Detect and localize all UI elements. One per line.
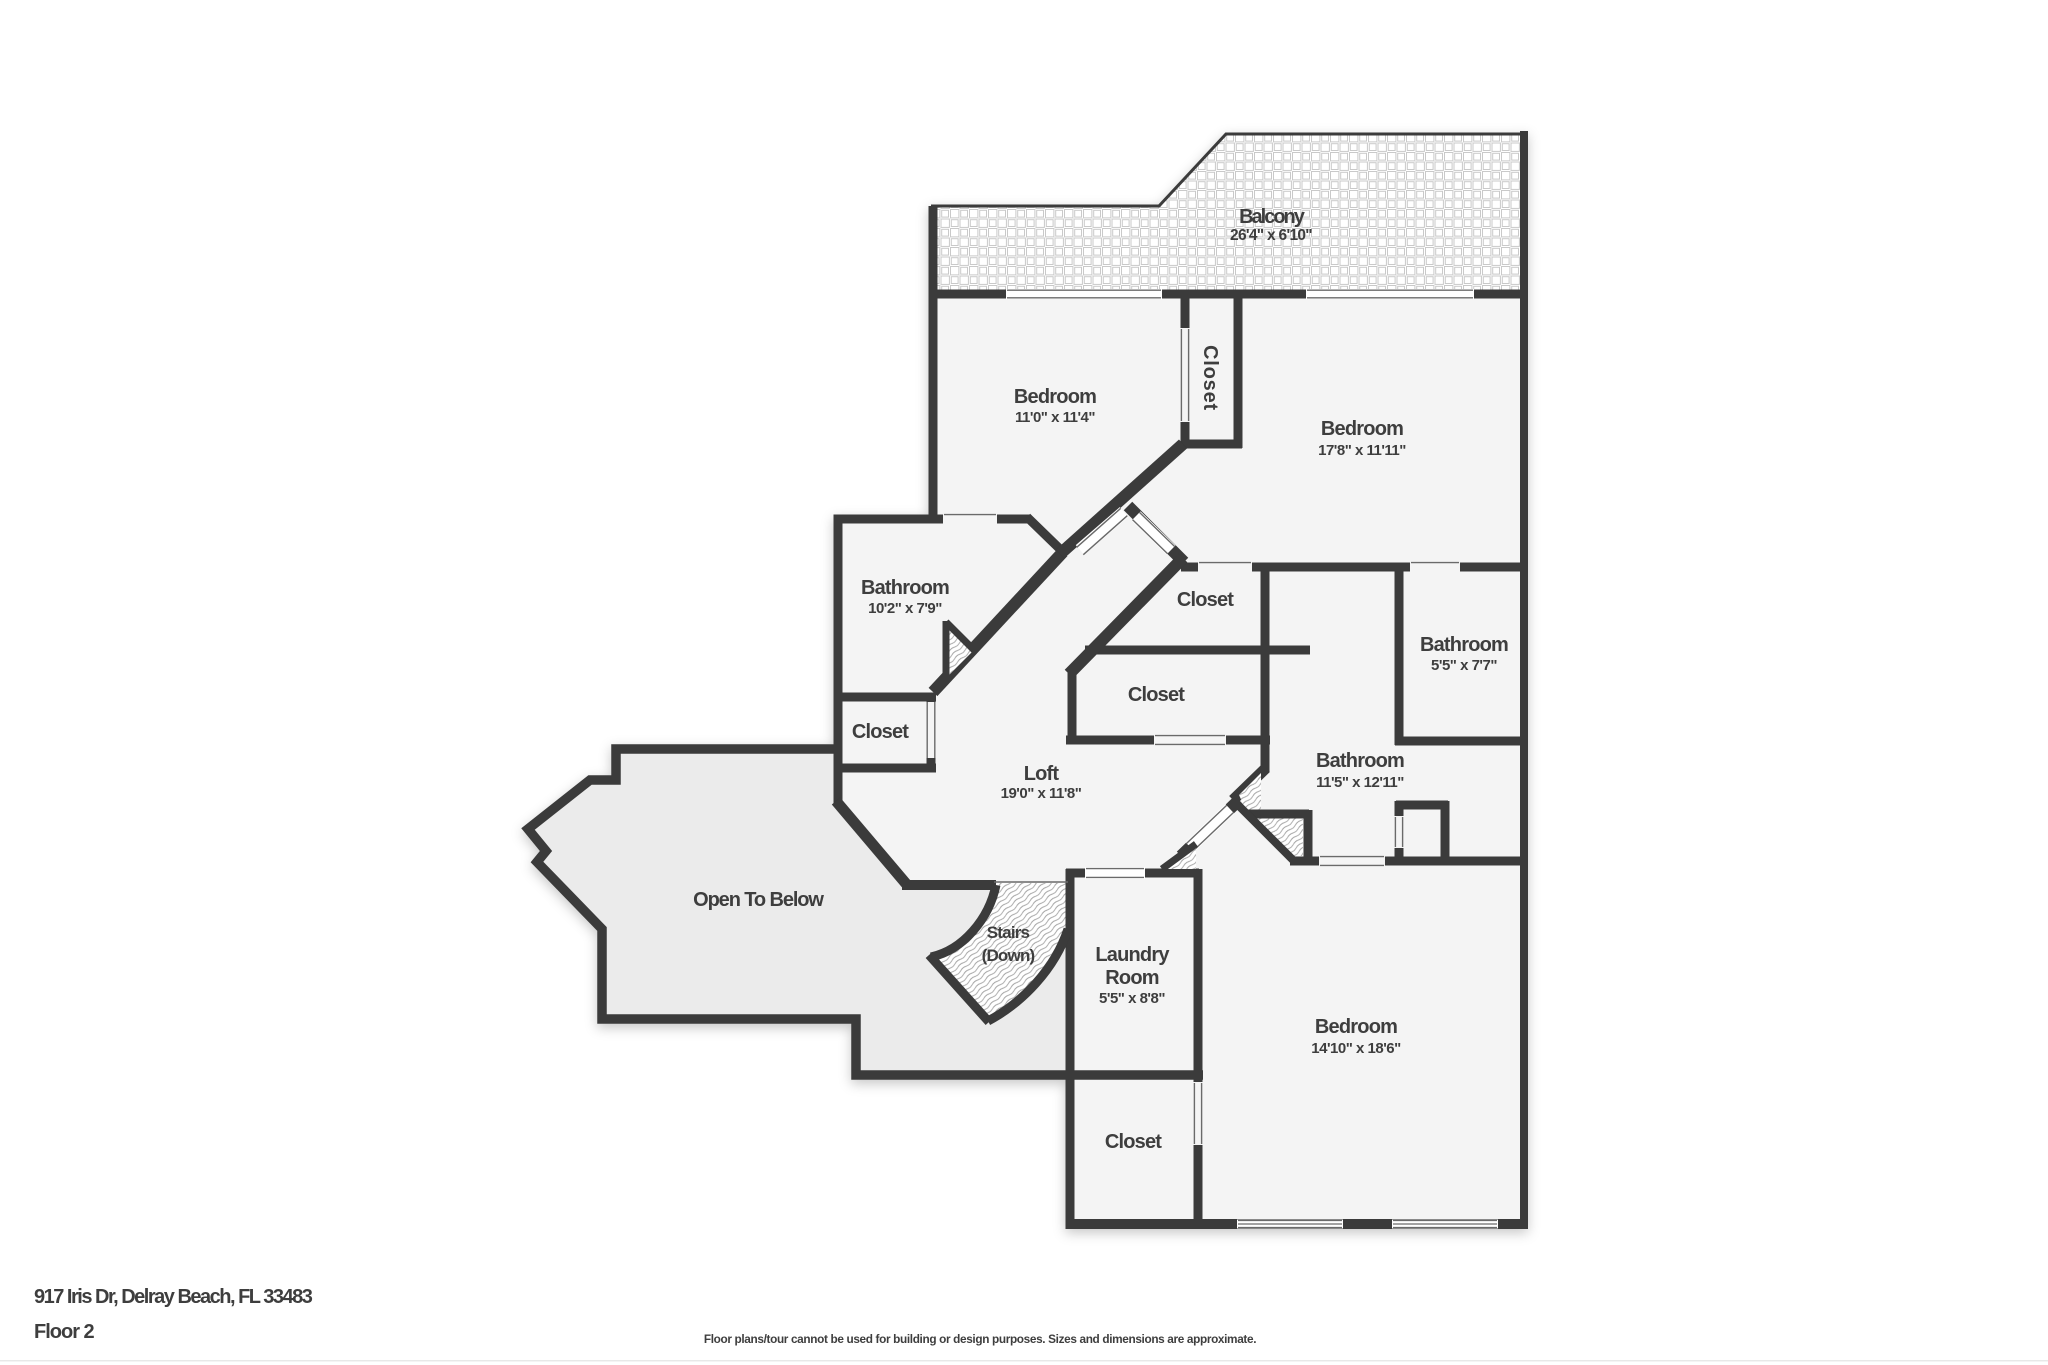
svg-text:Bathroom: Bathroom bbox=[861, 577, 949, 599]
svg-text:Bathroom: Bathroom bbox=[1420, 634, 1508, 656]
svg-text:10'2" x 7'9": 10'2" x 7'9" bbox=[868, 600, 942, 617]
svg-text:Closet: Closet bbox=[1199, 345, 1221, 411]
svg-text:Laundry: Laundry bbox=[1095, 944, 1170, 966]
svg-text:(Down): (Down) bbox=[982, 946, 1035, 965]
svg-text:Closet: Closet bbox=[1128, 684, 1185, 706]
svg-text:11'5" x 12'11": 11'5" x 12'11" bbox=[1316, 774, 1404, 791]
svg-text:Loft: Loft bbox=[1024, 763, 1060, 785]
svg-text:Closet: Closet bbox=[852, 721, 909, 743]
svg-text:17'8" x 11'11": 17'8" x 11'11" bbox=[1318, 442, 1406, 459]
svg-text:Open To Below: Open To Below bbox=[693, 889, 824, 911]
svg-text:14'10" x 18'6": 14'10" x 18'6" bbox=[1311, 1040, 1401, 1057]
svg-text:Balcony: Balcony bbox=[1239, 206, 1306, 228]
svg-text:Bathroom: Bathroom bbox=[1316, 750, 1404, 772]
svg-text:Room: Room bbox=[1105, 967, 1158, 989]
svg-text:Bedroom: Bedroom bbox=[1321, 418, 1403, 440]
svg-text:5'5" x 7'7": 5'5" x 7'7" bbox=[1431, 657, 1497, 674]
svg-text:Closet: Closet bbox=[1177, 589, 1234, 611]
svg-text:26'4" x 6'10": 26'4" x 6'10" bbox=[1230, 227, 1312, 244]
svg-text:Bedroom: Bedroom bbox=[1014, 386, 1096, 408]
svg-text:11'0" x 11'4": 11'0" x 11'4" bbox=[1015, 409, 1095, 426]
svg-text:917 Iris Dr, Delray Beach, FL: 917 Iris Dr, Delray Beach, FL 33483 bbox=[34, 1286, 313, 1308]
svg-text:Floor plans/tour cannot be use: Floor plans/tour cannot be used for buil… bbox=[704, 1332, 1256, 1346]
svg-text:5'5" x 8'8": 5'5" x 8'8" bbox=[1099, 990, 1165, 1007]
svg-text:19'0" x 11'8": 19'0" x 11'8" bbox=[1001, 785, 1082, 802]
svg-text:Bedroom: Bedroom bbox=[1315, 1016, 1397, 1038]
svg-text:Closet: Closet bbox=[1105, 1131, 1162, 1153]
svg-text:Stairs: Stairs bbox=[987, 923, 1030, 942]
svg-text:Floor 2: Floor 2 bbox=[34, 1321, 95, 1343]
